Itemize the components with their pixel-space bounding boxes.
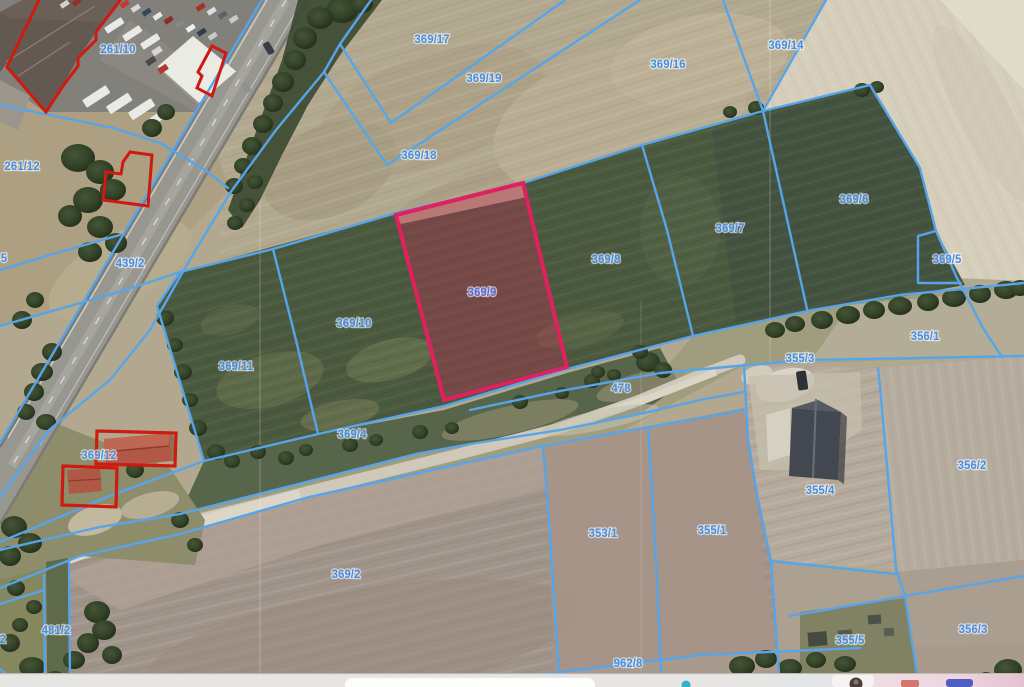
svg-text:356/1: 356/1 [911, 331, 940, 343]
svg-text:369/6: 369/6 [840, 194, 869, 206]
svg-text:355/3: 355/3 [786, 353, 815, 365]
svg-text:369/7: 369/7 [716, 223, 745, 235]
svg-text:369/19: 369/19 [466, 73, 501, 85]
svg-text:355/1: 355/1 [698, 525, 727, 537]
svg-text:5: 5 [1, 253, 8, 265]
svg-text:261/10: 261/10 [100, 44, 135, 56]
svg-text:369/18: 369/18 [401, 150, 437, 162]
svg-text:261/12: 261/12 [4, 161, 39, 173]
svg-text:355/5: 355/5 [836, 635, 865, 647]
svg-text:369/11: 369/11 [219, 361, 254, 373]
svg-text:481/2: 481/2 [42, 625, 71, 637]
svg-text:369/14: 369/14 [768, 40, 804, 52]
svg-text:356/3: 356/3 [959, 624, 988, 636]
svg-text:369/5: 369/5 [933, 254, 962, 266]
svg-text:369/2: 369/2 [332, 569, 361, 581]
svg-text:369/16: 369/16 [650, 59, 685, 71]
svg-text:369/17: 369/17 [414, 34, 449, 46]
svg-text:2: 2 [0, 634, 6, 646]
svg-text:369/8: 369/8 [592, 254, 621, 266]
svg-text:962/8: 962/8 [614, 658, 643, 670]
svg-text:353/1: 353/1 [589, 528, 618, 540]
svg-text:369/10: 369/10 [336, 318, 371, 330]
svg-text:478: 478 [611, 383, 631, 395]
svg-text:356/2: 356/2 [958, 460, 987, 472]
svg-text:369/4: 369/4 [338, 429, 367, 441]
svg-text:355/4: 355/4 [806, 485, 835, 497]
svg-text:369/12: 369/12 [81, 450, 116, 462]
svg-text:369/9: 369/9 [468, 287, 497, 299]
svg-text:439/2: 439/2 [116, 258, 145, 270]
